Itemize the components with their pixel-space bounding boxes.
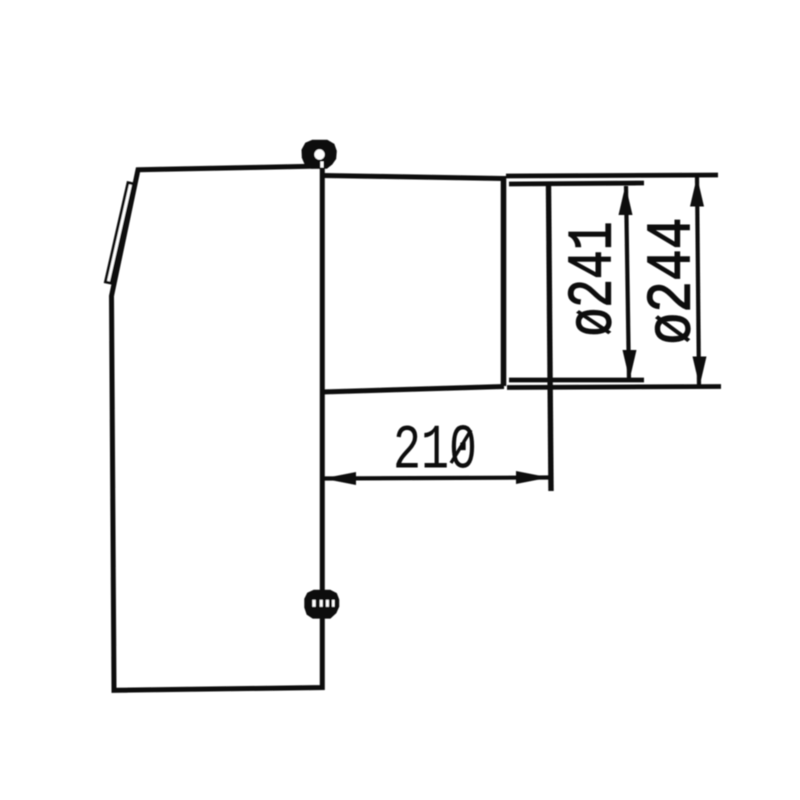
svg-text:ø244: ø244	[639, 218, 709, 345]
svg-text:ø241: ø241	[558, 222, 630, 337]
svg-text:210: 210	[393, 415, 477, 487]
